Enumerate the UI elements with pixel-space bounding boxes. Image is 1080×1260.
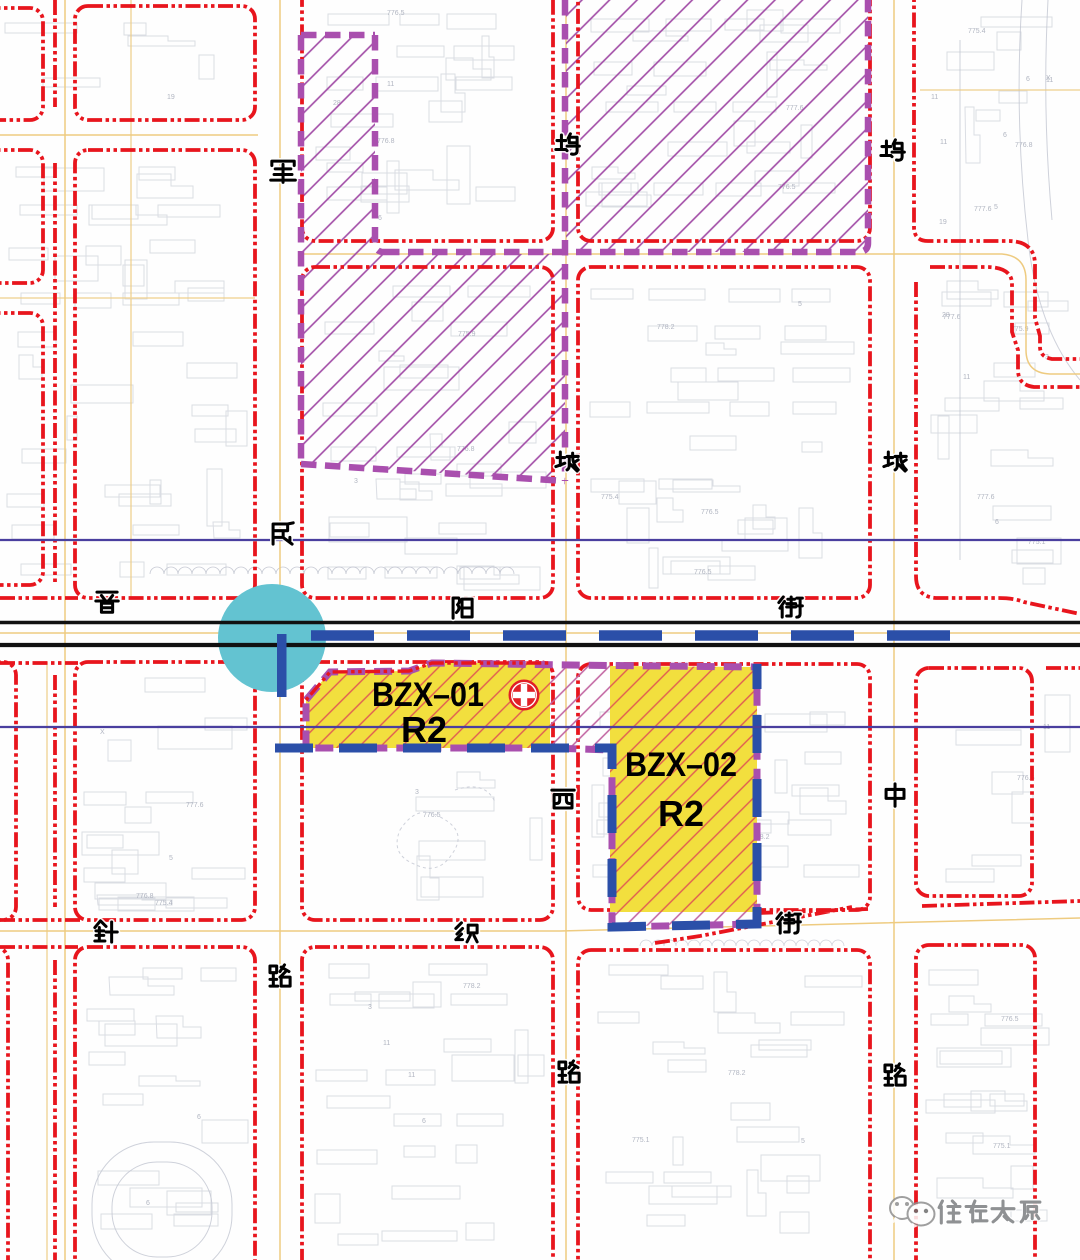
svg-text:5: 5	[994, 204, 998, 211]
svg-text:3: 3	[354, 478, 358, 485]
svg-text:776.8: 776.8	[377, 138, 395, 145]
svg-text:775.4: 775.4	[601, 494, 619, 501]
svg-text:776.5: 776.5	[694, 569, 712, 576]
svg-text:778.2: 778.2	[657, 324, 675, 331]
svg-text:11: 11	[387, 81, 394, 88]
svg-text:11: 11	[408, 1072, 415, 1079]
svg-text:777.6: 777.6	[977, 494, 995, 501]
svg-text:775.4: 775.4	[155, 900, 173, 907]
svg-text:777.6: 777.6	[943, 314, 961, 321]
svg-text:11: 11	[931, 94, 938, 101]
svg-text:3: 3	[415, 789, 419, 796]
svg-text:11: 11	[383, 1040, 390, 1047]
svg-text:BZX–02: BZX–02	[625, 746, 737, 784]
svg-text:19: 19	[167, 94, 175, 101]
svg-text:6: 6	[995, 519, 999, 526]
svg-text:6: 6	[146, 1200, 150, 1207]
svg-text:776.5: 776.5	[387, 10, 405, 17]
svg-text:778.2: 778.2	[463, 983, 481, 990]
svg-text:6: 6	[197, 1114, 201, 1121]
svg-text:5: 5	[798, 301, 802, 308]
svg-text:5: 5	[169, 855, 173, 862]
svg-text:777.6: 777.6	[186, 802, 204, 809]
svg-text:5: 5	[801, 1138, 805, 1145]
svg-text:19: 19	[939, 219, 947, 226]
svg-text:6: 6	[422, 1118, 426, 1125]
svg-text:776.8: 776.8	[1015, 142, 1033, 149]
svg-text:775.4: 775.4	[968, 28, 986, 35]
svg-text:X: X	[100, 729, 105, 736]
svg-text:R2: R2	[401, 709, 447, 750]
svg-text:11: 11	[1046, 77, 1053, 84]
svg-text:R2: R2	[658, 793, 704, 834]
svg-text:11: 11	[940, 139, 947, 146]
svg-text:6: 6	[1003, 132, 1007, 139]
svg-text:3: 3	[368, 1004, 372, 1011]
svg-text:776.5: 776.5	[1001, 1016, 1019, 1023]
svg-text:11: 11	[963, 374, 970, 381]
svg-text:778.2: 778.2	[728, 1070, 746, 1077]
svg-text:775.1: 775.1	[632, 1137, 650, 1144]
svg-text:6: 6	[1026, 76, 1030, 83]
svg-text:6: 6	[378, 215, 382, 222]
svg-text:776.5: 776.5	[701, 509, 719, 516]
svg-text:776.8: 776.8	[136, 893, 154, 900]
svg-text:777.6: 777.6	[974, 206, 992, 213]
svg-text:775.1: 775.1	[993, 1143, 1011, 1150]
